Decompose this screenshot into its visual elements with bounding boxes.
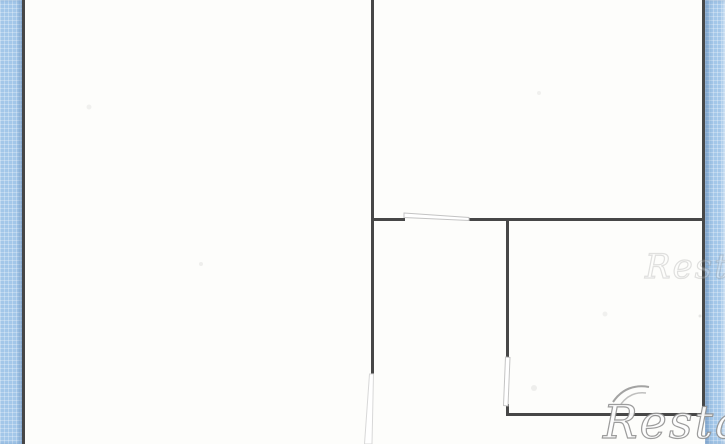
scan-smudge [603, 312, 608, 317]
door-leaf-right-opening [504, 357, 511, 406]
outer-wall-right [702, 0, 705, 415]
watermark-restate-main: Restate [603, 399, 725, 444]
outer-wall-left [22, 0, 25, 444]
interior-wall-vertical-right-upper [506, 221, 509, 358]
door-leaf-top-opening [404, 213, 469, 221]
interior-wall-vertical-main [371, 0, 374, 375]
door-leaf-bottom-opening [365, 374, 374, 444]
interior-wall-horizontal-right-run [468, 218, 705, 221]
scan-smudge [537, 91, 541, 95]
scan-smudge [87, 105, 92, 110]
scan-smudge [531, 385, 537, 391]
scan-smudge [699, 315, 702, 318]
floorplan-scan-page: Restate Restate [0, 0, 725, 444]
watermark-flourish-icon [608, 381, 660, 405]
interior-wall-horizontal-left-stub [371, 218, 405, 221]
watermark-restate-secondary: Restate [645, 250, 725, 284]
scan-smudge [199, 262, 203, 266]
floorplan-drawing [0, 0, 725, 444]
